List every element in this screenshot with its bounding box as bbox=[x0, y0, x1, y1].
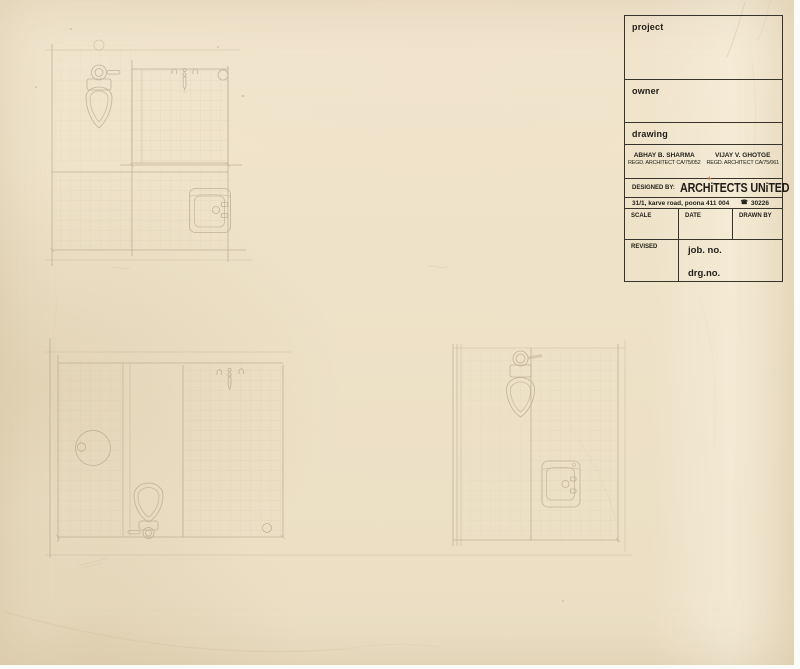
architect-2-registration: REGD. ARCHITECT CA/75/061 bbox=[704, 160, 783, 167]
architect-1-registration: REGD. ARCHITECT CA/75/052 bbox=[625, 160, 704, 167]
pencil-note-left bbox=[112, 267, 129, 269]
project-label: project bbox=[625, 16, 663, 32]
plan-top-left bbox=[45, 40, 449, 269]
architect-1: ABHAY B. SHARMA REGD. ARCHITECT CA/75/05… bbox=[625, 145, 704, 178]
scan-background-bottom-edge bbox=[0, 665, 800, 669]
phone-number: 30226 bbox=[751, 200, 769, 207]
architect-2-name: VIJAY V. GHOTGE bbox=[704, 152, 783, 160]
pencil-note-right bbox=[428, 266, 449, 268]
phone-icon: ☎ bbox=[740, 200, 747, 206]
drg-no-label: drg.no. bbox=[688, 268, 782, 279]
project-field: project bbox=[625, 16, 782, 80]
scale-label: SCALE bbox=[631, 213, 651, 219]
designed-by-row: DESIGNED BY: ARCHiTECTS UNiTED + bbox=[625, 179, 782, 198]
scale-date-drawn-row: SCALE DATE DRAWN BY bbox=[625, 209, 782, 240]
architect-1-name: ABHAY B. SHARMA bbox=[625, 152, 704, 160]
job-no-label: job. no. bbox=[688, 245, 782, 256]
architect-names-row: ABHAY B. SHARMA REGD. ARCHITECT CA/75/05… bbox=[625, 145, 782, 179]
drawn-by-field: DRAWN BY bbox=[733, 209, 782, 239]
drawing-field: drawing bbox=[625, 123, 782, 145]
owner-field: owner bbox=[625, 80, 782, 123]
owner-label: owner bbox=[625, 80, 660, 96]
firm-address: 31/1, karve road, poona 411 004 bbox=[625, 200, 729, 207]
scanned-drawing-sheet: project owner drawing ABHAY B. SHARMA RE… bbox=[0, 0, 800, 669]
drawing-label: drawing bbox=[625, 123, 668, 139]
pencil-note-bottom bbox=[78, 558, 108, 568]
phone-group: ☎ 30226 bbox=[740, 200, 782, 207]
revised-field: REVISED bbox=[625, 240, 679, 281]
date-label: DATE bbox=[685, 213, 701, 219]
job-drg-field: job. no. drg.no. bbox=[679, 240, 782, 281]
scan-background-right-edge bbox=[794, 0, 800, 669]
revised-job-row: REVISED job. no. drg.no. bbox=[625, 240, 782, 281]
plan-bottom bbox=[45, 338, 632, 568]
address-row: 31/1, karve road, poona 411 004 ☎ 30226 bbox=[625, 198, 782, 209]
firm-name: ARCHiTECTS UNiTED bbox=[680, 181, 789, 195]
architect-2: VIJAY V. GHOTGE REGD. ARCHITECT CA/75/06… bbox=[704, 145, 783, 178]
wc-plan-bottom-left bbox=[128, 483, 163, 539]
scale-field: SCALE bbox=[625, 209, 679, 239]
date-field: DATE bbox=[679, 209, 733, 239]
title-block: project owner drawing ABHAY B. SHARMA RE… bbox=[624, 15, 783, 282]
designed-by-label: DESIGNED BY: bbox=[632, 185, 675, 191]
drawn-by-label: DRAWN BY bbox=[739, 213, 772, 219]
revised-label: REVISED bbox=[631, 244, 657, 250]
